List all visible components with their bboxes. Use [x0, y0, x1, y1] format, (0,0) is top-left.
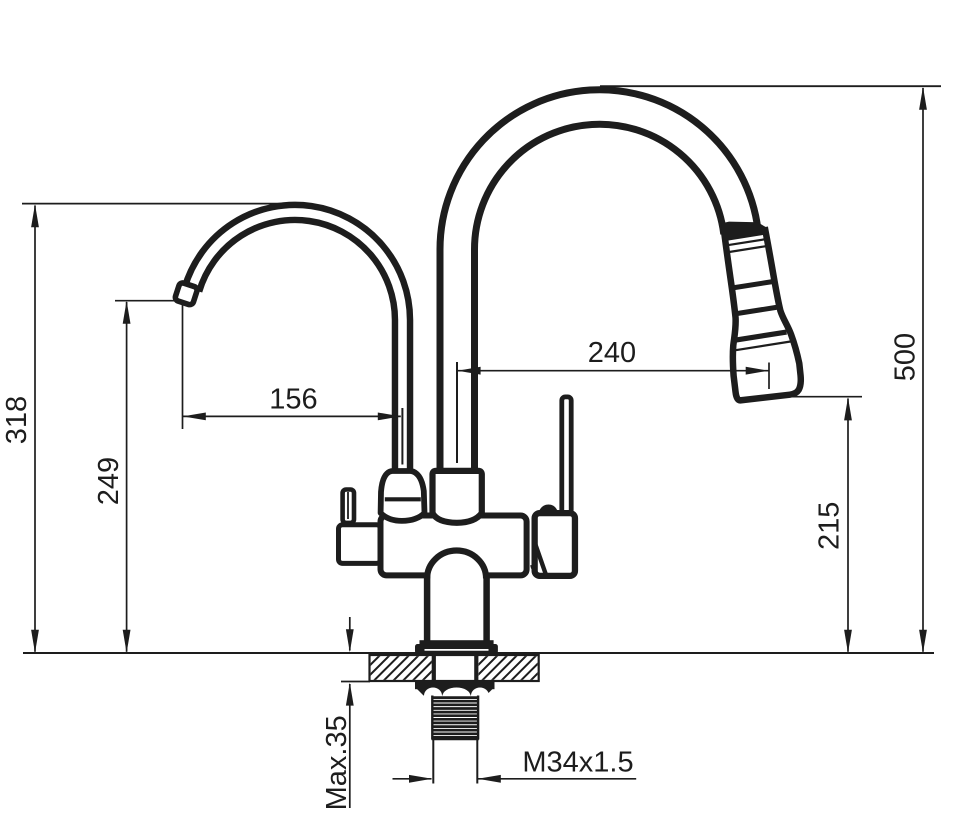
svg-text:240: 240 — [588, 337, 636, 369]
svg-text:Max.35: Max.35 — [321, 715, 353, 810]
svg-text:215: 215 — [813, 502, 845, 550]
svg-text:M34x1.5: M34x1.5 — [522, 746, 633, 778]
svg-text:500: 500 — [889, 333, 921, 381]
svg-text:249: 249 — [93, 457, 125, 505]
svg-text:156: 156 — [269, 384, 317, 416]
svg-text:318: 318 — [1, 396, 33, 444]
